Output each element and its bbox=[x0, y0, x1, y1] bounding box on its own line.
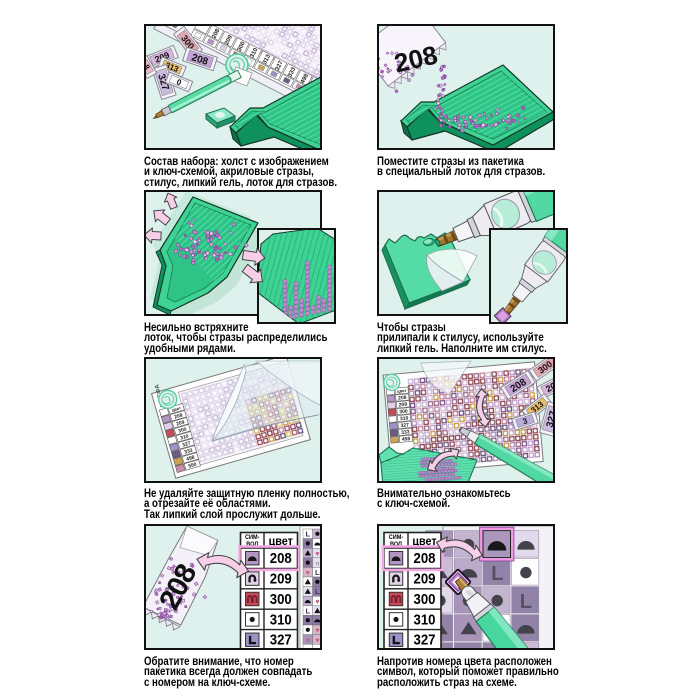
svg-text:209: 209 bbox=[270, 570, 292, 587]
svg-text:498: 498 bbox=[402, 436, 411, 443]
svg-text:208: 208 bbox=[414, 549, 436, 566]
svg-text:♥: ♥ bbox=[306, 635, 310, 644]
svg-text:209: 209 bbox=[399, 402, 408, 409]
svg-text:310: 310 bbox=[414, 610, 436, 627]
svg-text:208: 208 bbox=[398, 395, 407, 402]
svg-text:L: L bbox=[305, 606, 310, 615]
svg-text:300: 300 bbox=[414, 590, 436, 607]
svg-text:327: 327 bbox=[414, 631, 436, 648]
svg-text:310: 310 bbox=[400, 415, 409, 422]
svg-text:♥: ♥ bbox=[306, 568, 310, 577]
svg-text:327: 327 bbox=[270, 631, 292, 648]
svg-text:♥: ♥ bbox=[315, 549, 319, 558]
svg-text:L: L bbox=[315, 587, 320, 596]
svg-text:L: L bbox=[305, 529, 310, 538]
svg-text:333: 333 bbox=[401, 429, 410, 436]
svg-text:208: 208 bbox=[270, 549, 292, 566]
svg-text:327: 327 bbox=[400, 422, 409, 429]
svg-text:310: 310 bbox=[270, 610, 292, 627]
svg-text:∩: ∩ bbox=[315, 560, 320, 567]
svg-text:♥: ♥ bbox=[315, 635, 319, 644]
svg-text:300: 300 bbox=[270, 590, 292, 607]
svg-text:L: L bbox=[491, 563, 503, 585]
svg-text:209: 209 bbox=[414, 570, 436, 587]
svg-text:300: 300 bbox=[399, 409, 408, 416]
svg-text:♥: ♥ bbox=[315, 626, 319, 635]
svg-text:♥: ♥ bbox=[315, 597, 319, 606]
svg-text:L: L bbox=[520, 591, 532, 613]
svg-text:∩: ∩ bbox=[315, 647, 320, 648]
svg-text:цвет: цвет bbox=[397, 388, 407, 394]
svg-text:L: L bbox=[315, 568, 320, 577]
